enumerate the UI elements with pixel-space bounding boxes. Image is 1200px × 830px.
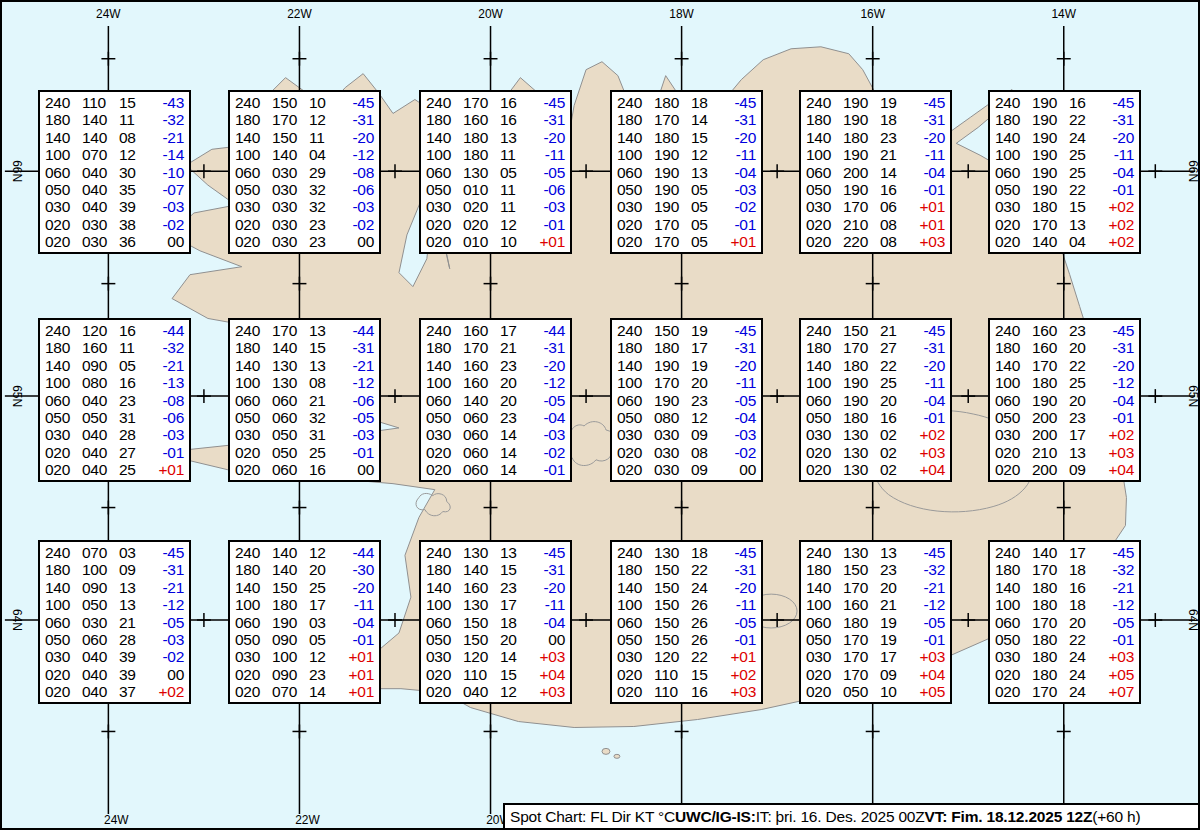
temperature-c: +03 [529, 683, 565, 700]
wind-speed-kt: 24 [1069, 129, 1091, 146]
temperature-c: +01 [909, 198, 945, 215]
spot-row: 18017014-31 [617, 111, 756, 128]
wind-speed-kt: 12 [500, 216, 522, 233]
temperature-c: +01 [148, 461, 184, 478]
flight-level: 030 [806, 426, 836, 443]
spot-row: 05020023-01 [995, 409, 1134, 426]
temperature-c: -12 [338, 146, 374, 163]
wind-speed-kt: 25 [880, 374, 902, 391]
wind-direction: 190 [654, 164, 684, 181]
wind-direction: 080 [654, 409, 684, 426]
spot-row: 18016020-31 [995, 339, 1134, 356]
flight-level: 060 [235, 614, 265, 631]
spot-row: 24015010-45 [235, 94, 374, 111]
flight-level: 020 [806, 683, 836, 700]
temperature-c: -05 [720, 614, 756, 631]
wind-direction: 040 [82, 426, 112, 443]
spot-row: 10016021-12 [806, 596, 945, 613]
temperature-c: +03 [1098, 648, 1134, 665]
spot-row: 18018017-31 [617, 339, 756, 356]
spot-row: 06019013-04 [617, 164, 756, 181]
temperature-c: 00 [148, 233, 184, 250]
wind-direction: 150 [654, 561, 684, 578]
wind-direction: 180 [463, 129, 493, 146]
temperature-c: -20 [909, 129, 945, 146]
temperature-c: -31 [529, 339, 565, 356]
flight-level: 240 [995, 322, 1025, 339]
wind-speed-kt: 25 [1069, 374, 1091, 391]
temperature-c: +02 [909, 426, 945, 443]
wind-speed-kt: 39 [119, 666, 141, 683]
wind-speed-kt: 27 [119, 444, 141, 461]
wind-speed-kt: 14 [691, 111, 713, 128]
temperature-c: +01 [338, 648, 374, 665]
flight-level: 180 [995, 111, 1025, 128]
spot-row: 02011015+02 [617, 666, 756, 683]
spot-row: 05019022-01 [995, 181, 1134, 198]
wind-speed-kt: 22 [1069, 181, 1091, 198]
wind-direction: 180 [1032, 596, 1062, 613]
wind-speed-kt: 04 [309, 146, 331, 163]
temperature-c: -12 [338, 374, 374, 391]
spot-row: 02003038-02 [45, 216, 184, 233]
wind-speed-kt: 03 [309, 614, 331, 631]
temperature-c: -45 [1098, 544, 1134, 561]
wind-direction: 040 [463, 683, 493, 700]
wind-direction: 060 [272, 392, 302, 409]
flight-level: 180 [617, 339, 647, 356]
temperature-c: -01 [529, 216, 565, 233]
temperature-c: -01 [148, 444, 184, 461]
wind-direction: 030 [82, 614, 112, 631]
wind-direction: 190 [843, 181, 873, 198]
wind-speed-kt: 16 [119, 322, 141, 339]
temperature-c: -12 [1098, 596, 1134, 613]
wind-speed-kt: 27 [880, 339, 902, 356]
flight-level: 180 [806, 339, 836, 356]
wind-direction: 220 [843, 233, 873, 250]
flight-level: 140 [995, 129, 1025, 146]
flight-level: 020 [45, 461, 75, 478]
wind-direction: 130 [272, 374, 302, 391]
wind-speed-kt: 19 [880, 94, 902, 111]
wind-speed-kt: 22 [880, 357, 902, 374]
flight-level: 180 [235, 339, 265, 356]
spot-row: 02017009+04 [806, 666, 945, 683]
wind-speed-kt: 05 [691, 233, 713, 250]
wind-direction: 180 [843, 357, 873, 374]
wind-speed-kt: 20 [880, 392, 902, 409]
spot-row: 14019024-20 [995, 129, 1134, 146]
wind-speed-kt: 10 [880, 683, 902, 700]
flight-level: 100 [995, 374, 1025, 391]
flight-level: 240 [45, 322, 75, 339]
wind-speed-kt: 15 [691, 666, 713, 683]
flight-level: 140 [235, 357, 265, 374]
flight-level: 020 [617, 444, 647, 461]
flight-level: 240 [45, 544, 75, 561]
spot-row: 24013018-45 [617, 544, 756, 561]
flight-level: 180 [617, 111, 647, 128]
wind-direction: 040 [82, 181, 112, 198]
wind-speed-kt: 16 [119, 374, 141, 391]
wind-speed-kt: 15 [1069, 198, 1091, 215]
wind-speed-kt: 21 [880, 322, 902, 339]
spot-row: 10015026-11 [617, 596, 756, 613]
temperature-c: -01 [338, 631, 374, 648]
wind-direction: 150 [463, 614, 493, 631]
spot-row: 10019012-11 [617, 146, 756, 163]
flight-level: 140 [45, 357, 75, 374]
wind-speed-kt: 23 [500, 357, 522, 374]
temperature-c: -06 [148, 409, 184, 426]
temperature-c: +02 [1098, 198, 1134, 215]
wind-direction: 190 [843, 111, 873, 128]
wind-direction: 110 [463, 666, 493, 683]
temperature-c: -32 [148, 339, 184, 356]
wind-direction: 130 [272, 357, 302, 374]
flight-level: 180 [426, 561, 456, 578]
flight-level: 020 [617, 666, 647, 683]
flight-level: 240 [426, 94, 456, 111]
temperature-c: -01 [909, 631, 945, 648]
wind-speed-kt: 23 [880, 561, 902, 578]
flight-level: 100 [235, 146, 265, 163]
wind-direction: 100 [272, 648, 302, 665]
wind-speed-kt: 13 [1069, 444, 1091, 461]
flight-level: 100 [806, 374, 836, 391]
temperature-c: -02 [148, 648, 184, 665]
wind-direction: 030 [272, 198, 302, 215]
flight-level: 060 [995, 164, 1025, 181]
flight-level: 100 [235, 596, 265, 613]
wind-speed-kt: 18 [1069, 596, 1091, 613]
wind-direction: 080 [82, 374, 112, 391]
wind-direction: 170 [654, 216, 684, 233]
flight-level: 060 [995, 392, 1025, 409]
temperature-c: -03 [148, 426, 184, 443]
wind-direction: 040 [82, 666, 112, 683]
spot-row: 14015025-20 [235, 579, 374, 596]
temperature-c: -11 [529, 596, 565, 613]
caption-segment: (+60 h) [1092, 808, 1140, 826]
lon-label-top: 16W [860, 7, 885, 21]
temperature-c: +04 [909, 666, 945, 683]
spot-row: 24012016-44 [45, 322, 184, 339]
spot-row: 03003032-03 [235, 198, 374, 215]
spot-row: 14018013-20 [426, 129, 565, 146]
wind-speed-kt: 16 [500, 111, 522, 128]
wind-speed-kt: 05 [691, 216, 713, 233]
flight-level: 030 [806, 648, 836, 665]
spot-row: 06015026-05 [617, 614, 756, 631]
spot-row: 14009013-21 [45, 579, 184, 596]
wind-direction: 190 [654, 198, 684, 215]
flight-level: 050 [426, 181, 456, 198]
wind-direction: 060 [272, 461, 302, 478]
flight-level: 180 [45, 339, 75, 356]
spot-row: 10018011-11 [426, 146, 565, 163]
spot-row: 10007012-14 [45, 146, 184, 163]
wind-speed-kt: 08 [119, 129, 141, 146]
spot-row: 02002012-01 [426, 216, 565, 233]
temperature-c: -12 [909, 596, 945, 613]
temperature-c: +04 [1098, 461, 1134, 478]
temperature-c: -05 [148, 614, 184, 631]
wind-direction: 180 [843, 614, 873, 631]
wind-direction: 160 [463, 579, 493, 596]
spot-row: 14018023-20 [806, 129, 945, 146]
flight-level: 060 [426, 614, 456, 631]
flight-level: 240 [806, 94, 836, 111]
wind-direction: 030 [654, 444, 684, 461]
flight-level: 060 [45, 392, 75, 409]
spot-row: 02011015+04 [426, 666, 565, 683]
wind-direction: 160 [463, 111, 493, 128]
flight-level: 020 [426, 216, 456, 233]
spot-row: 24016017-44 [426, 322, 565, 339]
wind-speed-kt: 08 [880, 233, 902, 250]
temperature-c: -03 [338, 198, 374, 215]
temperature-c: -04 [1098, 392, 1134, 409]
wind-direction: 160 [463, 374, 493, 391]
wind-speed-kt: 03 [119, 544, 141, 561]
flight-level: 020 [45, 233, 75, 250]
temperature-c: -01 [1098, 631, 1134, 648]
caption-segment-bold: VT: Fim. 18.12.2025 12Z [925, 808, 1093, 826]
wind-direction: 190 [843, 374, 873, 391]
wind-direction: 060 [463, 461, 493, 478]
spot-row: 02001010+01 [426, 233, 565, 250]
temperature-c: 00 [148, 666, 184, 683]
wind-speed-kt: 12 [309, 111, 331, 128]
spot-row: 14018022-20 [806, 357, 945, 374]
flight-level: 030 [995, 648, 1025, 665]
temperature-c: -31 [720, 111, 756, 128]
flight-level: 020 [806, 666, 836, 683]
wind-direction: 110 [82, 94, 112, 111]
temperature-c: -05 [909, 614, 945, 631]
temperature-c: +03 [529, 648, 565, 665]
wind-speed-kt: 15 [119, 94, 141, 111]
wind-speed-kt: 15 [500, 666, 522, 683]
wind-speed-kt: 02 [880, 444, 902, 461]
flight-level: 240 [806, 322, 836, 339]
spot-row: 06020014-04 [806, 164, 945, 181]
flight-level: 240 [426, 322, 456, 339]
spot-row: 06017020-05 [995, 614, 1134, 631]
spot-row: 02013002+04 [806, 461, 945, 478]
spot-row: 05019005-03 [617, 181, 756, 198]
temperature-c: -04 [909, 392, 945, 409]
spot-row: 06006021-06 [235, 392, 374, 409]
wind-speed-kt: 21 [309, 392, 331, 409]
wind-direction: 030 [272, 216, 302, 233]
flight-level: 240 [235, 544, 265, 561]
wind-speed-kt: 22 [1069, 357, 1091, 374]
wind-speed-kt: 09 [1069, 461, 1091, 478]
wind-speed-kt: 29 [309, 164, 331, 181]
temperature-c: 00 [529, 631, 565, 648]
temperature-c: -06 [338, 181, 374, 198]
temperature-c: -11 [909, 374, 945, 391]
caption-segment: Spot Chart: FL Dir KT °C [510, 808, 675, 826]
spot-row: 03004028-03 [45, 426, 184, 443]
wind-direction: 170 [1032, 614, 1062, 631]
spot-box-r3c3: 24013013-4518014015-3114016023-201001301… [419, 540, 572, 704]
lon-label-bottom: 22W [295, 813, 320, 827]
flight-level: 060 [617, 614, 647, 631]
wind-direction: 150 [654, 631, 684, 648]
wind-direction: 170 [1032, 561, 1062, 578]
spot-row: 06014020-05 [426, 392, 565, 409]
flight-level: 050 [235, 181, 265, 198]
flight-level: 180 [426, 111, 456, 128]
flight-level: 030 [426, 648, 456, 665]
spot-box-r1c5: 24019019-4518019018-3114018023-201001902… [799, 90, 952, 254]
temperature-c: -21 [148, 357, 184, 374]
temperature-c: -01 [529, 461, 565, 478]
wind-speed-kt: 20 [500, 374, 522, 391]
flight-level: 020 [45, 683, 75, 700]
lat-label-left: 65N [10, 385, 24, 407]
wind-speed-kt: 30 [119, 164, 141, 181]
wind-speed-kt: 23 [1069, 409, 1091, 426]
spot-row: 24018018-45 [617, 94, 756, 111]
wind-speed-kt: 24 [1069, 683, 1091, 700]
flight-level: 180 [235, 111, 265, 128]
spot-row: 0200601600 [235, 461, 374, 478]
lat-label-right: 65N [1186, 385, 1198, 407]
wind-speed-kt: 25 [309, 579, 331, 596]
wind-direction: 180 [1032, 648, 1062, 665]
spot-row: 03017017+03 [806, 648, 945, 665]
spot-row: 05006028-03 [45, 631, 184, 648]
wind-direction: 120 [82, 322, 112, 339]
temperature-c: -14 [148, 146, 184, 163]
lon-label-top: 24W [96, 7, 121, 21]
flight-level: 050 [995, 409, 1025, 426]
temperature-c: -21 [148, 579, 184, 596]
wind-direction: 210 [1032, 444, 1062, 461]
spot-row: 05005031-06 [45, 409, 184, 426]
wind-direction: 160 [82, 339, 112, 356]
wind-speed-kt: 32 [309, 181, 331, 198]
flight-level: 050 [617, 409, 647, 426]
wind-direction: 160 [463, 322, 493, 339]
wind-direction: 160 [1032, 322, 1062, 339]
wind-speed-kt: 17 [1069, 426, 1091, 443]
temperature-c: -30 [338, 561, 374, 578]
flight-level: 050 [426, 631, 456, 648]
flight-level: 140 [235, 129, 265, 146]
wind-speed-kt: 02 [880, 461, 902, 478]
wind-speed-kt: 14 [309, 683, 331, 700]
temperature-c: -20 [338, 579, 374, 596]
wind-direction: 170 [463, 339, 493, 356]
wind-direction: 170 [1032, 357, 1062, 374]
temperature-c: -31 [909, 111, 945, 128]
spot-row: 10013008-12 [235, 374, 374, 391]
wind-speed-kt: 23 [880, 129, 902, 146]
wind-speed-kt: 10 [500, 233, 522, 250]
wind-speed-kt: 13 [691, 164, 713, 181]
spot-row: 06019023-05 [617, 392, 756, 409]
wind-speed-kt: 35 [119, 181, 141, 198]
flight-level: 180 [45, 111, 75, 128]
wind-speed-kt: 25 [1069, 164, 1091, 181]
temperature-c: +03 [909, 233, 945, 250]
wind-direction: 190 [654, 357, 684, 374]
wind-direction: 040 [82, 461, 112, 478]
flight-level: 020 [426, 683, 456, 700]
spot-row: 03018024+03 [995, 648, 1134, 665]
wind-speed-kt: 28 [119, 426, 141, 443]
wind-direction: 140 [1032, 233, 1062, 250]
wind-speed-kt: 09 [880, 666, 902, 683]
flight-level: 240 [617, 94, 647, 111]
wind-speed-kt: 17 [309, 596, 331, 613]
wind-direction: 180 [843, 129, 873, 146]
spot-row: 14016023-20 [426, 579, 565, 596]
spot-row: 06019020-04 [995, 392, 1134, 409]
spot-row: 24019016-45 [995, 94, 1134, 111]
spot-row: 05003032-06 [235, 181, 374, 198]
temperature-c: 00 [338, 233, 374, 250]
spot-row: 03013002+02 [806, 426, 945, 443]
wind-speed-kt: 15 [691, 129, 713, 146]
flight-level: 050 [45, 409, 75, 426]
flight-level: 060 [45, 164, 75, 181]
lon-label-bottom: 24W [104, 813, 129, 827]
flight-level: 060 [806, 164, 836, 181]
temperature-c: -08 [338, 164, 374, 181]
temperature-c: -44 [338, 322, 374, 339]
spot-row: 02007014+01 [235, 683, 374, 700]
spot-row: 06003021-05 [45, 614, 184, 631]
wind-direction: 190 [1032, 181, 1062, 198]
spot-row: 03004039-02 [45, 648, 184, 665]
spot-row: 05006032-05 [235, 409, 374, 426]
wind-speed-kt: 05 [500, 164, 522, 181]
flight-level: 030 [45, 198, 75, 215]
flight-level: 050 [426, 409, 456, 426]
temperature-c: -45 [529, 544, 565, 561]
flight-level: 030 [235, 426, 265, 443]
wind-direction: 040 [82, 164, 112, 181]
flight-level: 100 [426, 596, 456, 613]
spot-row: 03018015+02 [995, 198, 1134, 215]
wind-speed-kt: 14 [500, 648, 522, 665]
temperature-c: -03 [720, 181, 756, 198]
wind-direction: 090 [272, 631, 302, 648]
flight-level: 240 [45, 94, 75, 111]
wind-speed-kt: 20 [500, 392, 522, 409]
flight-level: 050 [806, 631, 836, 648]
wind-direction: 130 [654, 544, 684, 561]
wind-speed-kt: 13 [119, 596, 141, 613]
temperature-c: -11 [720, 374, 756, 391]
temperature-c: +02 [1098, 233, 1134, 250]
spot-row: 05017019-01 [806, 631, 945, 648]
flight-level: 030 [45, 648, 75, 665]
temperature-c: -06 [529, 181, 565, 198]
flight-level: 140 [426, 579, 456, 596]
temperature-c: -07 [148, 181, 184, 198]
flight-level: 140 [806, 129, 836, 146]
wind-speed-kt: 18 [1069, 561, 1091, 578]
flight-level: 140 [617, 357, 647, 374]
